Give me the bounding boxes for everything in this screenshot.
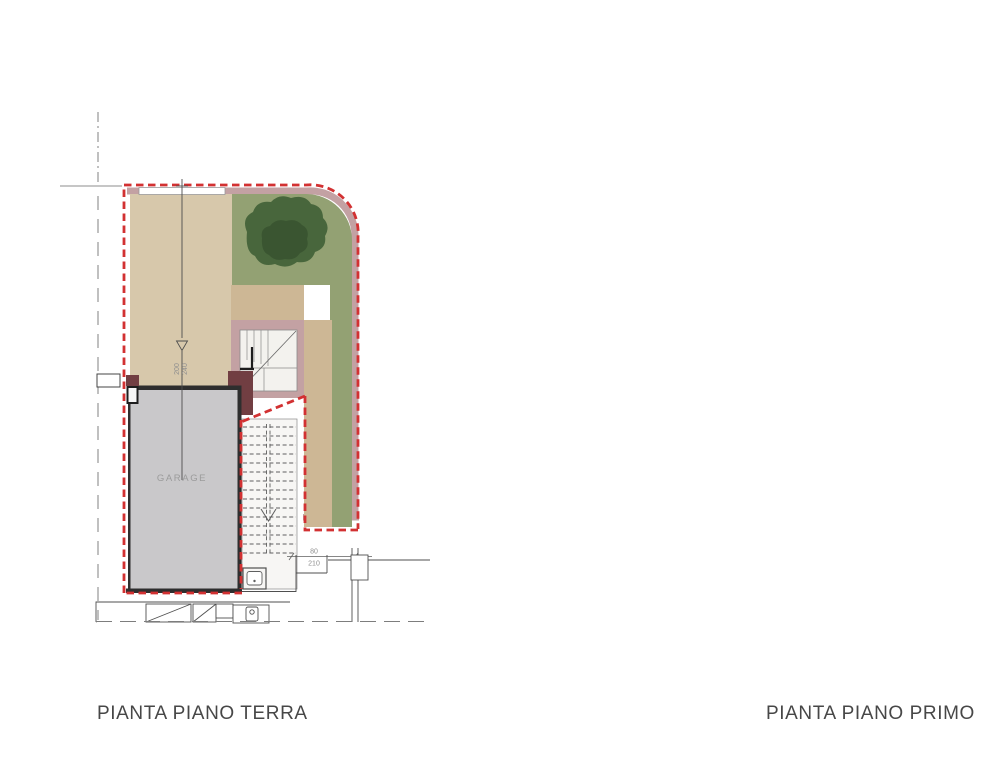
svg-text:80: 80 [310, 549, 318, 556]
svg-text:PIANTA PIANO TERRA: PIANTA PIANO TERRA [97, 703, 308, 724]
svg-text:240: 240 [182, 363, 189, 375]
svg-text:PIANTA PIANO PRIMO: PIANTA PIANO PRIMO [766, 703, 975, 724]
svg-text:210: 210 [308, 561, 320, 568]
svg-text:200: 200 [174, 363, 181, 375]
